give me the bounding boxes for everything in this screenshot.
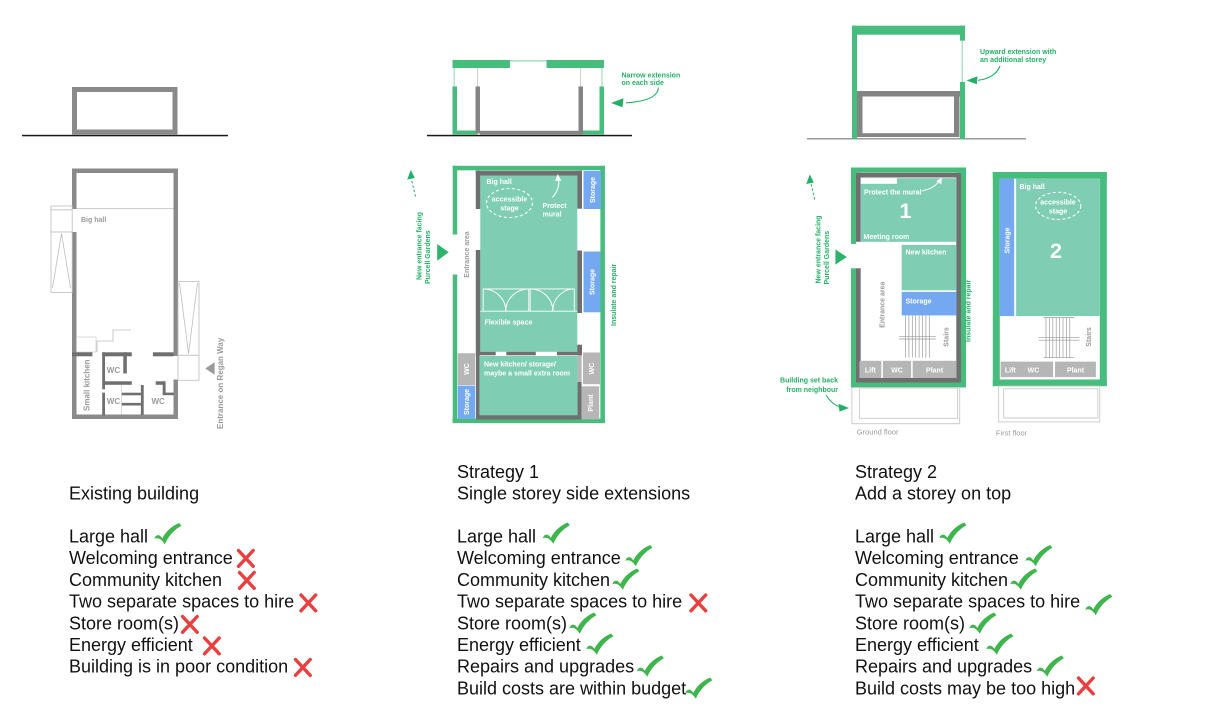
svg-text:Plant: Plant [1067, 367, 1085, 374]
svg-text:1: 1 [900, 199, 912, 223]
svg-text:Plant: Plant [588, 394, 595, 412]
svg-text:Strategy 1: Strategy 1 [457, 462, 539, 482]
svg-text:Welcoming entrance: Welcoming entrance [69, 548, 233, 568]
svg-text:Store room(s): Store room(s) [457, 613, 567, 633]
svg-text:2: 2 [1050, 239, 1062, 263]
svg-text:Lift: Lift [1005, 367, 1017, 374]
svg-text:Community kitchen: Community kitchen [457, 570, 610, 590]
svg-text:Lift: Lift [865, 367, 877, 374]
svg-text:Plant: Plant [926, 367, 944, 374]
svg-text:Purcell Gardens: Purcell Gardens [824, 231, 831, 285]
svg-text:Add a storey on top: Add a storey on top [855, 484, 1011, 504]
svg-text:Large hall: Large hall [855, 527, 934, 547]
svg-text:Entrance on Regan Way: Entrance on Regan Way [216, 337, 225, 429]
svg-text:Existing building: Existing building [69, 484, 199, 504]
svg-text:Insulate and repair: Insulate and repair [611, 263, 618, 326]
svg-text:Big hall: Big hall [1020, 184, 1045, 191]
svg-text:from neighbour: from neighbour [786, 387, 838, 394]
svg-text:Stairs: Stairs [1086, 327, 1093, 347]
svg-text:Large hall: Large hall [457, 527, 536, 547]
svg-text:Narrow extension: Narrow extension [622, 73, 681, 80]
svg-text:New entrance facing: New entrance facing [417, 212, 424, 280]
svg-text:WC: WC [891, 367, 903, 374]
svg-text:Purcell Gardens: Purcell Gardens [425, 230, 432, 284]
svg-text:WC: WC [589, 363, 596, 375]
svg-text:Upward extension with: Upward extension with [980, 49, 1056, 56]
svg-text:Energy efficient: Energy efficient [457, 635, 581, 655]
svg-text:First floor: First floor [996, 428, 1028, 437]
svg-text:mural: mural [543, 212, 562, 219]
svg-text:Building set back: Building set back [780, 377, 838, 384]
svg-text:Entrance area: Entrance area [880, 281, 887, 327]
svg-text:Welcoming entrance: Welcoming entrance [855, 548, 1019, 568]
svg-text:Two separate spaces to hire: Two separate spaces to hire [457, 592, 682, 612]
svg-text:Welcoming entrance: Welcoming entrance [457, 548, 621, 568]
svg-text:Large hall: Large hall [69, 527, 148, 547]
svg-text:Small kitchen: Small kitchen [83, 359, 92, 411]
svg-text:Flexible space: Flexible space [485, 320, 533, 327]
svg-text:Store room(s): Store room(s) [69, 613, 179, 633]
svg-text:Strategy 2: Strategy 2 [855, 462, 937, 482]
svg-text:Ground floor: Ground floor [857, 427, 899, 436]
svg-text:accessible: accessible [492, 197, 528, 204]
svg-text:Big hall: Big hall [81, 217, 106, 224]
svg-text:Build costs may be too high: Build costs may be too high [855, 678, 1075, 698]
svg-text:stage: stage [500, 206, 518, 213]
svg-text:Meeting room: Meeting room [864, 234, 910, 241]
svg-text:New entrance facing: New entrance facing [815, 215, 822, 283]
svg-text:Big hall: Big hall [487, 179, 512, 186]
svg-text:New kitchen: New kitchen [906, 250, 947, 257]
svg-text:on each side: on each side [622, 80, 665, 87]
svg-text:Two separate spaces to hire: Two separate spaces to hire [69, 592, 294, 612]
svg-text:an additional storey: an additional storey [980, 57, 1046, 64]
svg-text:Build costs are within budget: Build costs are within budget [457, 678, 686, 698]
svg-text:Storage: Storage [906, 299, 932, 306]
svg-text:Single storey side extensions: Single storey side extensions [457, 484, 690, 504]
svg-text:Community kitchen: Community kitchen [69, 570, 222, 590]
svg-text:maybe a small extra room: maybe a small extra room [484, 371, 570, 378]
svg-text:Protect the mural: Protect the mural [864, 190, 922, 197]
svg-text:WC: WC [107, 397, 121, 406]
svg-text:Storage: Storage [1005, 227, 1012, 253]
svg-text:Storage: Storage [590, 177, 597, 203]
svg-text:New kitchen/ storage/: New kitchen/ storage/ [484, 362, 556, 369]
svg-text:Store room(s): Store room(s) [855, 613, 965, 633]
svg-text:WC: WC [152, 397, 166, 406]
svg-text:Two separate spaces to hire: Two separate spaces to hire [855, 592, 1080, 612]
svg-text:accessible: accessible [1040, 200, 1076, 207]
svg-text:WC: WC [464, 363, 471, 375]
svg-text:WC: WC [107, 366, 121, 375]
svg-text:Repairs and upgrades: Repairs and upgrades [457, 657, 634, 677]
svg-text:Protect: Protect [543, 203, 568, 210]
svg-text:Storage: Storage [464, 389, 471, 415]
svg-text:Entrance area: Entrance area [464, 231, 471, 277]
svg-text:Energy efficient: Energy efficient [69, 635, 193, 655]
svg-text:stage: stage [1049, 209, 1067, 216]
svg-text:Insulate and repair: Insulate and repair [966, 279, 973, 342]
svg-text:Building is in poor condition: Building is in poor condition [69, 657, 288, 677]
svg-text:Repairs and upgrades: Repairs and upgrades [855, 657, 1032, 677]
svg-text:Storage: Storage [590, 269, 597, 295]
svg-text:Community kitchen: Community kitchen [855, 570, 1008, 590]
svg-text:Stairs: Stairs [944, 327, 951, 347]
svg-text:Energy efficient: Energy efficient [855, 635, 979, 655]
svg-text:WC: WC [1028, 367, 1040, 374]
